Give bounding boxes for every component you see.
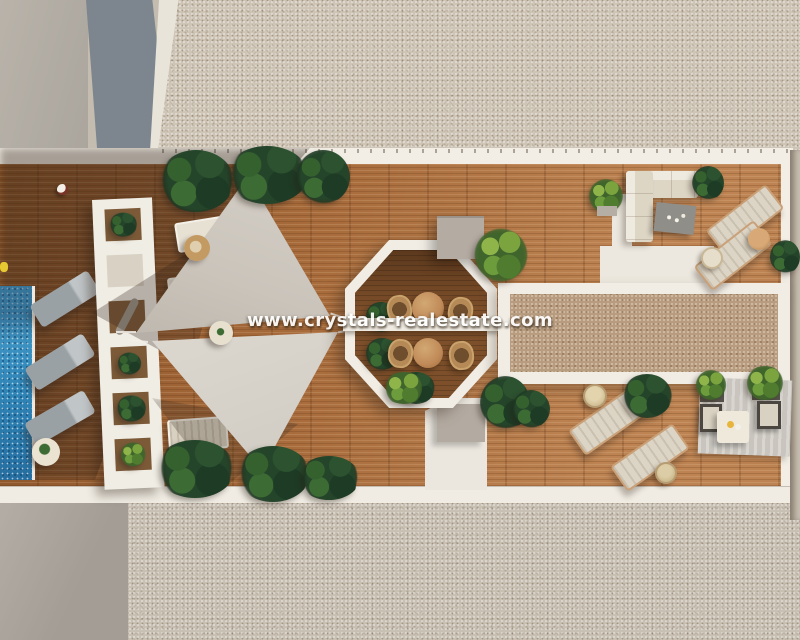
pouf-with-plant (32, 438, 60, 466)
potted-plant (692, 166, 724, 200)
walkway-opening (114, 438, 151, 472)
planter-pot (597, 206, 617, 216)
round-parasol-table (184, 235, 210, 261)
edge-foliage (155, 440, 235, 498)
planter-foliage (119, 442, 148, 467)
planter-foliage (116, 395, 147, 422)
candles (667, 215, 671, 219)
edge-foliage (158, 150, 234, 212)
walkway-opening (112, 392, 149, 426)
side-table-cream (701, 247, 723, 269)
deck-plant (622, 374, 672, 418)
gravel-roof-top (158, 0, 800, 150)
concrete-roof-bottom-left (0, 503, 132, 640)
watermark: www.crystals-realestate.com (0, 310, 800, 336)
candle (735, 424, 741, 430)
armchair (757, 401, 781, 429)
utility-box-south (437, 404, 485, 442)
side-table-wood (748, 228, 770, 250)
gravel-roof-bottom (128, 503, 800, 640)
fire-table (717, 411, 749, 443)
shrub (770, 240, 800, 274)
deck-bush (382, 372, 426, 404)
candle-flame (727, 421, 734, 428)
edge-foliage (296, 150, 350, 204)
concrete-roof-top-left (0, 0, 88, 158)
coffee-table (654, 202, 697, 235)
planter-foliage (109, 212, 138, 237)
woven-pouf (583, 384, 607, 408)
rooftop-render: www.crystals-realestate.com (0, 0, 800, 640)
pool-toy (0, 262, 8, 272)
beach-ball (57, 184, 68, 195)
walkway-opening (110, 346, 147, 380)
walkway-opening (104, 208, 141, 242)
deck-plant (512, 390, 550, 428)
edge-foliage (298, 456, 360, 500)
walkway-opening (106, 254, 143, 288)
planter-foliage (117, 352, 142, 375)
dining-table (413, 338, 443, 368)
planter-bush (694, 370, 728, 400)
sofa-section-vertical (626, 171, 653, 242)
woven-pouf (655, 462, 677, 484)
palm-cluster (474, 226, 528, 284)
planter-bush (744, 366, 786, 400)
